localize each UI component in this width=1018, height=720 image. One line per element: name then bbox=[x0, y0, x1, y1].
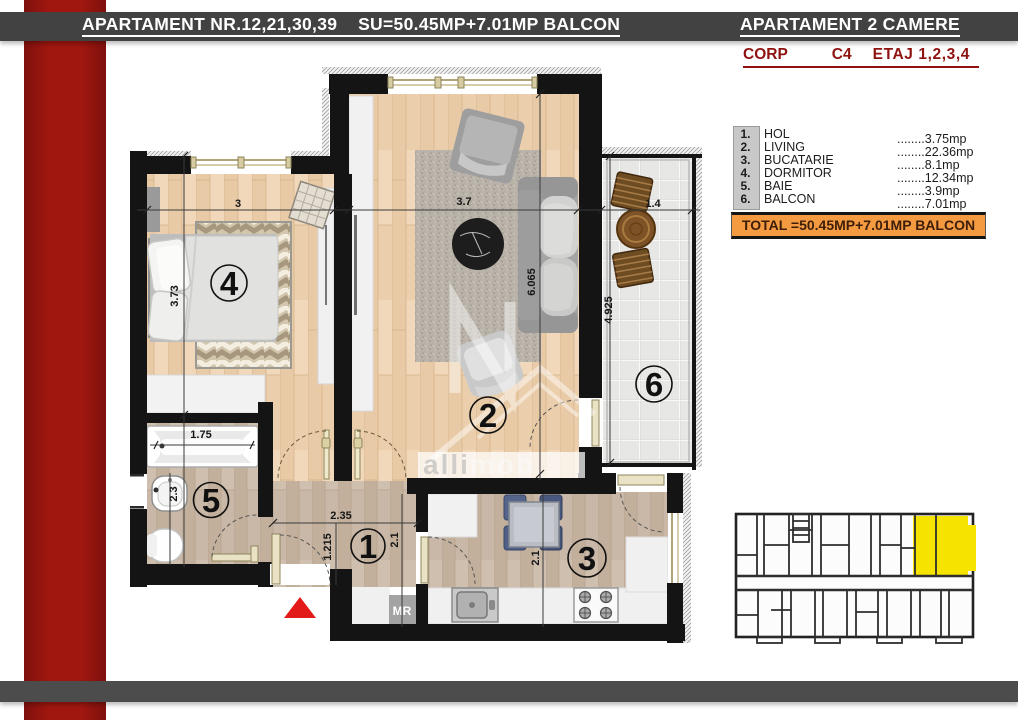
svg-text:3: 3 bbox=[578, 540, 596, 577]
svg-text:1.4: 1.4 bbox=[645, 198, 661, 210]
svg-text:3.7: 3.7 bbox=[456, 196, 471, 208]
svg-text:6.065: 6.065 bbox=[526, 268, 538, 296]
svg-text:2: 2 bbox=[479, 397, 497, 434]
svg-text:3.73: 3.73 bbox=[169, 285, 181, 306]
svg-text:5: 5 bbox=[202, 482, 220, 519]
svg-text:2.3: 2.3 bbox=[168, 486, 180, 501]
svg-text:2.35: 2.35 bbox=[330, 510, 351, 522]
svg-text:1.75: 1.75 bbox=[190, 429, 211, 441]
svg-text:allimob: allimob bbox=[423, 449, 535, 480]
svg-text:3: 3 bbox=[235, 198, 241, 210]
svg-text:1: 1 bbox=[359, 528, 377, 565]
svg-text:6: 6 bbox=[645, 366, 663, 403]
svg-text:1.215: 1.215 bbox=[322, 533, 334, 561]
svg-text:2.1: 2.1 bbox=[389, 532, 401, 547]
svg-text:4.925: 4.925 bbox=[603, 296, 615, 324]
svg-text:2.1: 2.1 bbox=[530, 550, 542, 565]
svg-text:4: 4 bbox=[220, 265, 239, 302]
